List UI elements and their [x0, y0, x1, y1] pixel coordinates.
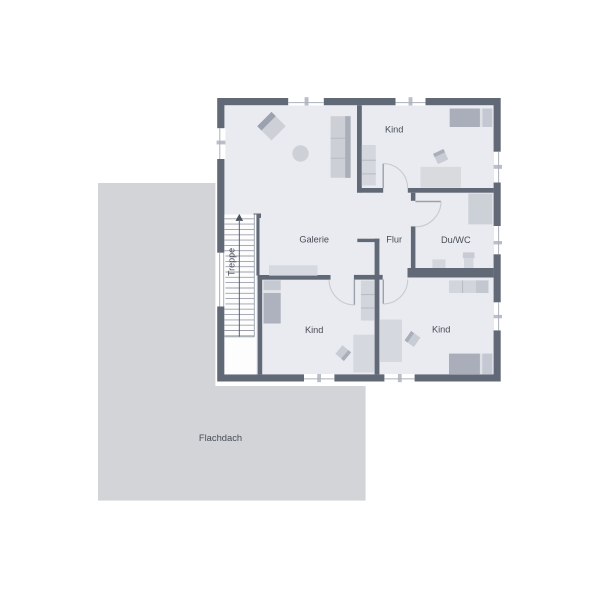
- svg-text:Flur: Flur: [386, 235, 402, 245]
- svg-text:Galerie: Galerie: [299, 235, 329, 245]
- svg-text:Kind: Kind: [385, 125, 403, 135]
- svg-text:Kind: Kind: [432, 325, 450, 335]
- svg-text:Treppe: Treppe: [227, 248, 237, 276]
- svg-text:Flachdach: Flachdach: [199, 432, 242, 443]
- svg-text:Kind: Kind: [305, 325, 323, 335]
- svg-text:Du/WC: Du/WC: [441, 235, 471, 245]
